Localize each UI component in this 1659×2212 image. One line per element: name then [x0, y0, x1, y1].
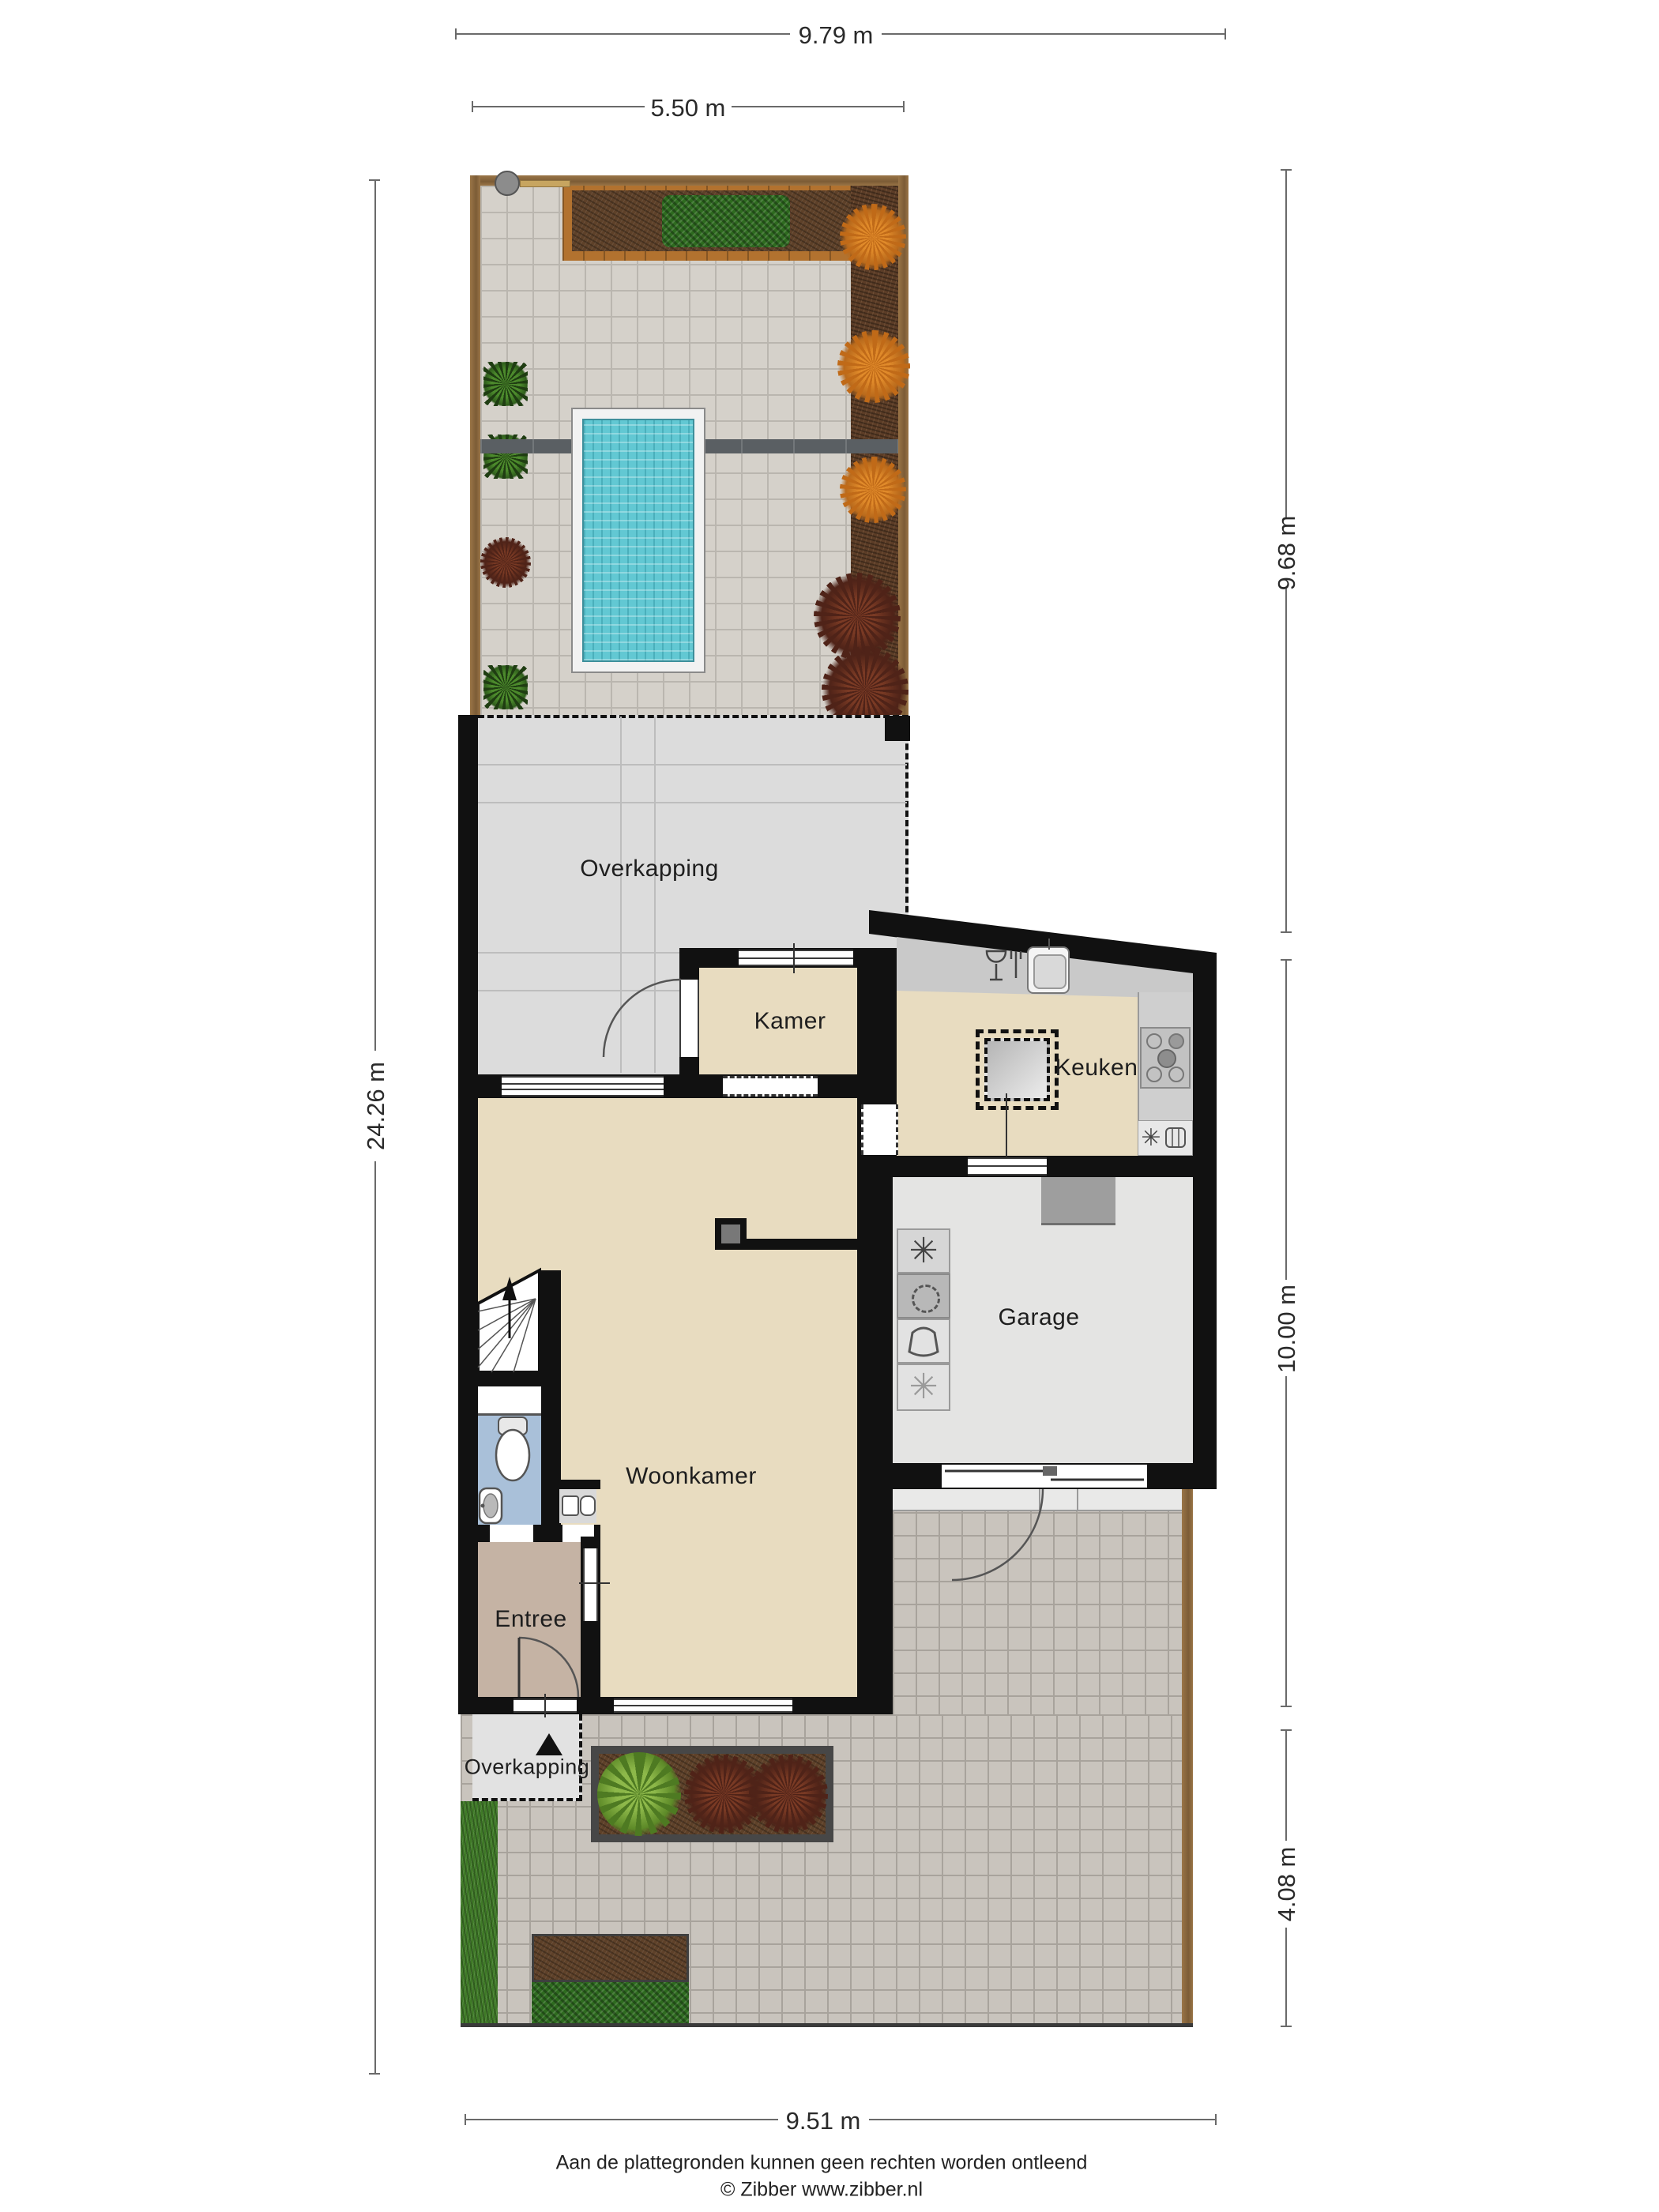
dim-right-front: 4.08 m: [1273, 1847, 1301, 1922]
appliance-freezer-2: ✳: [897, 1364, 950, 1411]
footer-copyright: © Zibber www.zibber.nl: [720, 2179, 923, 2202]
dim-tick: [369, 2073, 380, 2075]
garage-mat: [1041, 1177, 1115, 1225]
orange-plant-icon: [840, 204, 906, 270]
dim-right-house: 10.00 m: [1273, 1285, 1301, 1373]
oven-icon: [1165, 1127, 1186, 1148]
appliance-washing-machine: [897, 1273, 950, 1319]
deck-line: [478, 990, 679, 991]
toilet-door: [490, 1525, 533, 1542]
woonkamer-top-window: [502, 1076, 664, 1097]
garage-door-opening: [942, 1465, 1147, 1488]
dim-line: [1285, 171, 1287, 517]
front-bed-soil: [532, 1934, 689, 1982]
room-label-overkapping-voor: Overkapping: [465, 1755, 590, 1780]
floorplan-canvas: 9.79 m 5.50 m 24.26 m 9.68 m 10.00 m 4.0…: [0, 0, 1659, 2212]
wall-segment: [857, 1098, 893, 1714]
kamer-door-opening: [679, 980, 699, 1057]
deck-line: [478, 802, 907, 803]
planter-box: [591, 1746, 833, 1842]
dim-tick: [903, 101, 905, 112]
wall-segment: [540, 1270, 561, 1542]
bush-icon: [597, 1752, 681, 1836]
dim-line: [374, 1161, 376, 2074]
wall-segment: [458, 715, 478, 1714]
garden-fence-left: [470, 175, 480, 715]
front-hedge: [532, 1982, 689, 2026]
shrub-icon: [483, 665, 528, 709]
dim-right-garden: 9.68 m: [1273, 516, 1301, 591]
freezer-snowflake-icon: ✳: [909, 1370, 939, 1405]
keuken-window: [968, 1157, 1047, 1176]
woonkamer-front-window: [614, 1698, 792, 1713]
wall-segment: [559, 1480, 600, 1489]
dim-line: [466, 2119, 778, 2120]
room-label-garage: Garage: [998, 1304, 1079, 1331]
front-fence-right: [1182, 1489, 1193, 2026]
wall-segment: [877, 1156, 1217, 1177]
dim-line: [374, 181, 376, 1051]
raised-bed-hedge: [662, 195, 790, 247]
room-label-overkapping-boven: Overkapping: [580, 856, 719, 882]
meter-cupboard-icon: [562, 1495, 579, 1516]
room-label-kamer: Kamer: [754, 1008, 826, 1035]
appliance-freezer: ✳: [897, 1228, 950, 1273]
dim-line: [1285, 1376, 1287, 1706]
pool: [582, 419, 694, 662]
front-door: [513, 1698, 577, 1713]
washing-machine-icon: [912, 1285, 940, 1313]
deck-line: [654, 717, 656, 1073]
dim-line: [869, 2119, 1215, 2120]
wall-segment: [478, 1372, 540, 1386]
entrance-arrow-icon: [536, 1733, 562, 1755]
deck-line: [478, 764, 907, 766]
keuken-pass-opening: [861, 1104, 898, 1155]
dim-line: [1285, 1731, 1287, 1841]
room-label-woonkamer: Woonkamer: [626, 1463, 757, 1490]
dim-top-total: 9.79 m: [799, 21, 874, 50]
room-label-keuken: Keuken: [1055, 1055, 1138, 1082]
dim-left-total: 24.26 m: [362, 1062, 390, 1150]
kitchen-appliance-cell: ✳: [1138, 1120, 1193, 1156]
gate-rail: [520, 180, 570, 187]
chimney-flue: [721, 1224, 740, 1243]
red-spiky-plant-icon: [749, 1755, 828, 1834]
footer-disclaimer: Aan de plattegronden kunnen geen rechten…: [556, 2152, 1088, 2175]
freezer-snowflake-icon: ✳: [909, 1234, 939, 1269]
freezer-snowflake-icon: ✳: [1141, 1127, 1161, 1150]
red-plant-icon: [480, 537, 531, 588]
dim-line: [1285, 961, 1287, 1280]
garden-gate-icon: [495, 171, 520, 196]
laundry-basket-icon: [898, 1320, 949, 1362]
overkapping-boven-edge: [905, 715, 908, 922]
orange-plant-icon: [837, 330, 910, 403]
dim-tick: [1224, 28, 1226, 39]
dim-top-garden: 5.50 m: [651, 94, 726, 122]
deck-line: [478, 952, 679, 954]
meter-cupboard: [559, 1489, 596, 1523]
entree-glass-panel: [583, 1548, 598, 1621]
dim-tick: [1281, 2026, 1292, 2027]
meter-cupboard-icon: [580, 1495, 596, 1516]
driveway-paving: [893, 1489, 1182, 1714]
dim-line: [473, 106, 645, 107]
dim-bottom-total: 9.51 m: [786, 2107, 861, 2135]
dim-line: [732, 106, 903, 107]
wall-stub: [747, 1239, 857, 1250]
deck-line: [620, 717, 622, 1073]
sink-icon: [1027, 946, 1070, 994]
orange-plant-icon: [840, 457, 906, 523]
appliance-laundry-basket: [897, 1319, 950, 1364]
kamer-window: [739, 950, 853, 966]
dim-line: [1285, 1928, 1287, 2026]
dim-line: [457, 33, 790, 35]
dim-line: [882, 33, 1224, 35]
kamer-pass-through: [723, 1076, 818, 1097]
plot-bottom-edge: [461, 2023, 1193, 2027]
keuken-skylight: [976, 1029, 1059, 1110]
shrub-icon: [483, 362, 528, 406]
garage-apron: [893, 1489, 1182, 1511]
gas-hob-icon: [1140, 1027, 1191, 1089]
wall-segment: [1193, 968, 1217, 1489]
dim-tick: [1281, 1706, 1292, 1707]
overkapping-post: [885, 716, 910, 741]
toilet-shelf: [478, 1386, 541, 1416]
room-label-entree: Entree: [495, 1606, 566, 1633]
dim-line: [1285, 589, 1287, 932]
dim-tick: [1281, 931, 1292, 933]
dim-tick: [1215, 2114, 1217, 2125]
grass-strip: [461, 1801, 498, 2026]
